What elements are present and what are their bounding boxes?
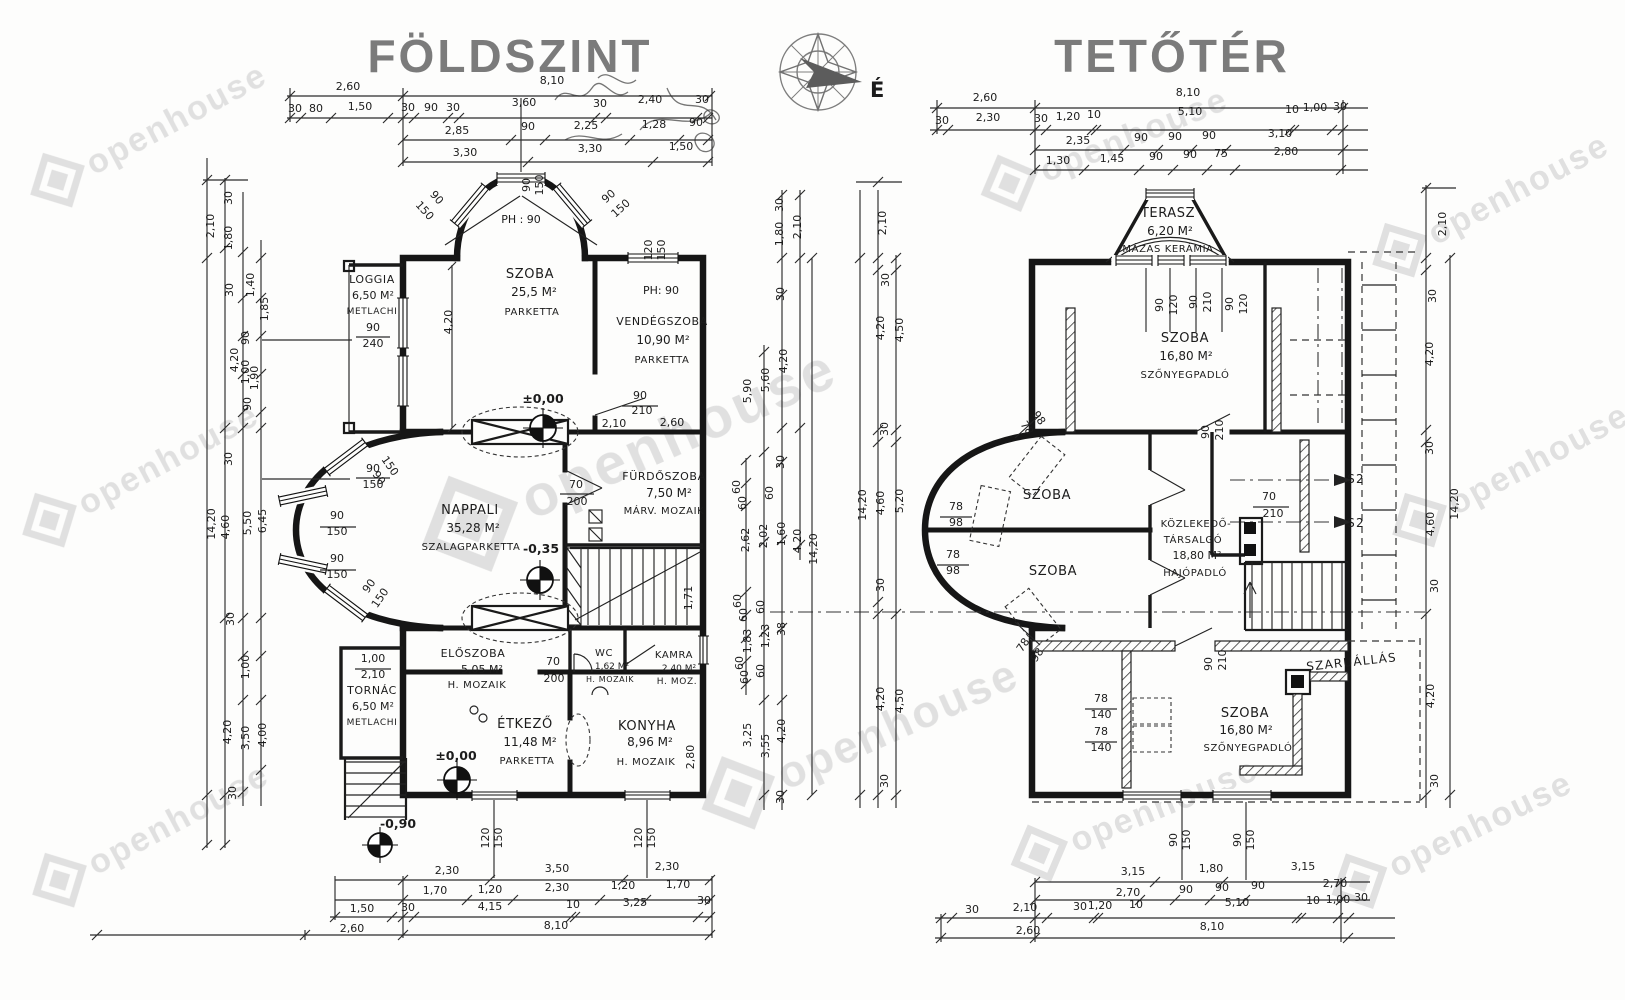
dim-label: 4,20 [874, 316, 887, 341]
dim-label: 150 [645, 828, 658, 849]
dim-label: 4,60 [1424, 512, 1437, 537]
dim-label: 4,20 [442, 310, 455, 335]
dim-label: 3,55 [759, 734, 772, 759]
dim-label: 150 [492, 828, 505, 849]
dim-label: 90 [520, 178, 533, 192]
dim-label: 90 [1153, 298, 1166, 312]
dim-label: 78 [949, 500, 963, 513]
area-label: 18,80 M² [1173, 549, 1222, 562]
dim-label: 30 [1426, 289, 1439, 303]
floor-label: PARKETTA [500, 756, 555, 767]
dim-label: 30 [878, 774, 891, 788]
dim-label: 90 [1168, 130, 1182, 143]
dim-label: 1,45 [1100, 152, 1125, 165]
room-label: TÁRSALGÓ [1163, 533, 1223, 546]
watermark [1384, 388, 1625, 556]
dim-label: 90 [521, 120, 535, 133]
dim-label: 4,20 [1423, 342, 1436, 367]
dim-label: 3,15 [1291, 860, 1316, 873]
dim-label: 10 [566, 898, 580, 911]
room-label: FÜRDŐSZOBA [622, 469, 705, 483]
floor-label: MÁZAS KERÁMIA [1122, 242, 1213, 255]
window [1123, 789, 1181, 802]
dim-label: 150 [327, 568, 348, 581]
dim-label: 1,20 [1056, 110, 1081, 123]
dim-label: 1,80 [1199, 862, 1224, 875]
dim-label: 90 [241, 397, 254, 411]
watermark [1364, 118, 1617, 286]
dim-label: 4,20 [221, 720, 234, 745]
dim-label: 78 [1094, 725, 1108, 738]
dim-label: 90 [599, 187, 618, 206]
dim-label: 30 [773, 198, 786, 212]
dim-label: 2,10 [876, 211, 889, 236]
dim-label: 5,10 [1225, 896, 1250, 909]
room-label: SZOBA [506, 267, 554, 282]
dim-label: 10 [1129, 898, 1143, 911]
dim-label: 38 [775, 622, 788, 636]
dim-label: 90 [239, 331, 252, 345]
room-label: NAPPALI [441, 503, 499, 518]
area-label: 6,50 M² [352, 289, 394, 302]
dim-label: 70 [1262, 490, 1276, 503]
dim-label: 150 [327, 525, 348, 538]
dim-label: 120 [1167, 295, 1180, 316]
north-label: É [870, 77, 884, 102]
dim-label: 8,10 [540, 74, 565, 87]
area-label: 6,50 M² [352, 700, 394, 713]
room-label: ÉTKEZŐ [497, 716, 553, 732]
room-label: SZOBA [1029, 564, 1077, 579]
dim-label: 4,20 [791, 529, 804, 554]
dim-label: 30 [1423, 441, 1436, 455]
floor-label: H. MOZAIK [586, 675, 634, 684]
dim-label: 240 [363, 337, 384, 350]
dim-label: 1,00 [239, 655, 252, 680]
dim-label: 2,80 [1274, 145, 1299, 158]
dim-label: 3,60 [512, 96, 537, 109]
dim-label: 8,10 [1200, 920, 1225, 933]
room-label: VENDÉGSZOBA [616, 315, 708, 328]
dim-label: 30 [697, 894, 711, 907]
level-mark-label: -0,35 [523, 541, 559, 556]
dim-label: 120 [1237, 294, 1250, 315]
dim-label: 30 [226, 786, 239, 800]
dim-label: 1,00 [1303, 101, 1328, 114]
dim-label: 90 [1149, 150, 1163, 163]
room-label: LOGGIA [349, 273, 395, 286]
dim-label: 2,60 [340, 922, 365, 935]
level-mark-label: -0,90 [380, 816, 416, 831]
dim-label: 2,40 [638, 93, 663, 106]
dim-label: 30 [401, 101, 415, 114]
note-label: SZARUÁLLÁS [1306, 649, 1398, 673]
window [697, 636, 710, 664]
dim-label: 2,10 [204, 214, 217, 239]
dim-label: 90 [1199, 425, 1212, 439]
dim-label: 70 [569, 478, 583, 491]
dim-label: 1,50 [669, 140, 694, 153]
watermark [22, 48, 275, 216]
dim-label: 98 [949, 516, 963, 529]
watermark [24, 748, 277, 916]
room-label: SZOBA [1023, 488, 1071, 503]
dim-label: 1,30 [1046, 154, 1071, 167]
dim-label: 1,20 [478, 883, 503, 896]
dim-label: 30 [401, 901, 415, 914]
room-label: TERASZ [1140, 206, 1195, 221]
level-mark [520, 560, 560, 600]
dim-label: 200 [544, 672, 565, 685]
dim-label: 140 [1091, 741, 1112, 754]
dim-label: 30 [222, 191, 235, 205]
room-label: ELŐSZOBA [441, 646, 506, 660]
room-label: SZOBA [1221, 706, 1269, 721]
dim-label: 30 [695, 93, 709, 106]
dim-label: 2,30 [655, 860, 680, 873]
dim-label: 90 [1202, 657, 1215, 671]
area-label: 35,28 M² [446, 521, 500, 535]
dim-label: 14,20 [856, 489, 869, 521]
dim-label: 2,35 [1066, 134, 1091, 147]
watermark-layer [14, 48, 1625, 916]
dim-label: 210 [632, 404, 653, 417]
dim-label: 30 [446, 101, 460, 114]
dim-label: 5,50 [241, 511, 254, 536]
dim-label: 4,20 [874, 687, 887, 712]
dim-label: 60 [763, 486, 776, 500]
dim-label: 14,20 [1448, 488, 1461, 520]
dim-label: 4,60 [874, 491, 887, 516]
dim-label: 3,30 [453, 146, 478, 159]
window [551, 182, 593, 228]
dim-label: 4,15 [478, 900, 503, 913]
dim-label: 30 [1354, 891, 1368, 904]
floor-label: PARKETTA [505, 307, 560, 318]
floor-plan-sheet: openhouse FÖLDSZINT TETŐTÉR É [0, 0, 1625, 1000]
dim-label: 60 [733, 656, 746, 670]
dim-label: 1,20 [611, 879, 636, 892]
dim-label: 4,20 [1424, 684, 1437, 709]
level-mark-label: ±0,00 [435, 748, 477, 763]
room-label: KONYHA [618, 719, 676, 734]
dim-label: 1,00 [1326, 893, 1351, 906]
dim-label: 120 [642, 240, 655, 261]
dim-label: 3,50 [545, 862, 570, 875]
dim-label: 90 [1179, 883, 1193, 896]
dim-label: 90 [1251, 879, 1265, 892]
dim-label: 2,30 [545, 881, 570, 894]
dim-label: 1,83 [741, 629, 754, 654]
dim-label: 90 [1183, 148, 1197, 161]
dim-label: 2,60 [973, 91, 998, 104]
dim-label: 90 [1167, 833, 1180, 847]
dim-label: 140 [1091, 708, 1112, 721]
dim-label: 30 [874, 578, 887, 592]
dim-label: 1,60 [775, 522, 788, 547]
dim-label: 4,50 [893, 689, 906, 714]
dim-label: 2,10 [1436, 212, 1449, 237]
dim-label: 2,62 [739, 528, 752, 553]
dim-label: 30 [1428, 579, 1441, 593]
dim-label: 60 [754, 600, 767, 614]
floor-label: SZŐNYEGPADLÓ [1141, 367, 1230, 381]
room-label: TORNÁC [346, 684, 397, 697]
plan-labels: 2,608,1030801,503090303,60302,40302,8590… [204, 74, 1461, 937]
dim-label: 2,30 [435, 864, 460, 877]
dim-label: 150 [1244, 830, 1257, 851]
dim-label: 4,00 [256, 723, 269, 748]
dim-label: 150 [655, 240, 668, 261]
attic-title: TETŐTÉR [1054, 30, 1290, 82]
dim-label: 4,20 [775, 719, 788, 744]
dim-label: 1,00 [361, 652, 386, 665]
dim-label: 3,25 [741, 723, 754, 748]
area-label: 16,80 M² [1219, 723, 1273, 737]
dim-label: 60 [754, 664, 767, 678]
dim-label: 210 [1216, 650, 1229, 671]
dim-label: 210 [1201, 292, 1214, 313]
level-mark-label: ±0,00 [522, 391, 564, 406]
dim-label: 1,70 [423, 884, 448, 897]
dim-label: 1,70 [666, 878, 691, 891]
dim-label: 1,23 [759, 624, 772, 649]
dim-label: 30 [774, 790, 787, 804]
dim-label: 60 [738, 670, 751, 684]
dim-label: 3,50 [239, 726, 252, 751]
dim-label: 30 [288, 102, 302, 115]
room-label: KAMRA [655, 650, 693, 661]
dim-label: 1,50 [348, 100, 373, 113]
dim-label: 90 [1187, 295, 1200, 309]
dim-label: 6,45 [256, 509, 269, 534]
dim-label: 5,10 [1178, 105, 1203, 118]
dim-label: 3,30 [578, 142, 603, 155]
dim-label: 2,10 [602, 417, 627, 430]
dim-label: 90 [1134, 131, 1148, 144]
dim-label: 120 [632, 828, 645, 849]
dim-label: 200 [567, 495, 588, 508]
dim-label: 2,10 [1013, 901, 1038, 914]
dim-label: 30 [935, 114, 949, 127]
area-label: 1,62 M² [595, 662, 630, 672]
dim-label: 3,10 [1268, 127, 1293, 140]
window [1146, 187, 1194, 200]
dim-label: 1,80 [773, 222, 786, 247]
dim-label: 90 [427, 188, 446, 207]
dim-label: 210 [1263, 507, 1284, 520]
dim-label: 1,28 [642, 118, 667, 131]
window [396, 298, 410, 348]
dim-label: 30 [593, 97, 607, 110]
dim-label: 30 [1034, 112, 1048, 125]
dim-label: 3,15 [1121, 865, 1146, 878]
dim-label: 2,10 [791, 215, 804, 240]
dim-label: 2,60 [660, 416, 685, 429]
dim-label: 2,80 [684, 745, 697, 770]
dim-label: 90 [330, 509, 344, 522]
dim-label: 30 [223, 283, 236, 297]
dim-label: 90 [330, 552, 344, 565]
area-label: 11,48 M² [503, 735, 557, 749]
floor-label: METLACHI [347, 307, 398, 317]
dim-label: 8,10 [544, 919, 569, 932]
level-mark [362, 827, 398, 863]
dim-label: 98 [946, 564, 960, 577]
area-label: 16,80 M² [1159, 349, 1213, 363]
dim-label: 30 [965, 903, 979, 916]
room-label: WC [595, 648, 613, 659]
dim-label: PH: 90 [643, 284, 679, 297]
dim-label: 5,60 [759, 368, 772, 393]
dim-label: 90 [689, 116, 703, 129]
dim-label: 90 [1231, 833, 1244, 847]
note-label: S2 [1347, 516, 1365, 530]
dim-label: 5,90 [741, 379, 754, 404]
dim-label: 5,20 [893, 489, 906, 514]
dim-label: 2,02 [757, 524, 770, 549]
ground-floor-title: FÖLDSZINT [367, 30, 652, 82]
dim-label: 30 [1333, 100, 1347, 113]
dim-label: 8,10 [1176, 86, 1201, 99]
dim-label: 2,70 [1323, 877, 1348, 890]
dim-label: 2,25 [574, 119, 599, 132]
dim-label: 10 [1087, 108, 1101, 121]
dim-label: 1,50 [350, 902, 375, 915]
dim-label: 1,71 [682, 586, 695, 611]
dim-label: 1,40 [244, 273, 257, 298]
area-label: 2,40 M² [662, 664, 697, 674]
room-label: KÖZLEKEDŐ- [1161, 516, 1232, 530]
floor-label: MÁRV. MOZAIK [624, 504, 705, 517]
compass-rose [780, 34, 862, 110]
area-label: 10,90 M² [636, 333, 690, 347]
dim-label: 90 [1223, 297, 1236, 311]
dim-label: 75 [1214, 147, 1228, 160]
dim-label: 70 [546, 655, 560, 668]
dim-label: 10 [1306, 894, 1320, 907]
floor-label: SZŐNYEGPADLÓ [1204, 740, 1293, 754]
floor-label: PARKETTA [635, 355, 690, 366]
dim-label: 2,85 [445, 124, 470, 137]
room-label: SZOBA [1161, 331, 1209, 346]
area-label: 5,05 M² [461, 663, 503, 676]
window [396, 356, 410, 406]
dim-label: 1,85 [258, 297, 271, 322]
floor-label: H. MOZAIK [448, 680, 507, 691]
dim-label: 78 [1094, 692, 1108, 705]
floor-label: METLACHI [347, 718, 398, 728]
dim-label: 30 [1428, 774, 1441, 788]
window [449, 182, 491, 228]
dim-label: 1,90 [248, 366, 261, 391]
dim-label: 60 [731, 594, 744, 608]
dim-label: 14,20 [205, 508, 218, 540]
dim-label: 30 [878, 422, 891, 436]
dim-label: 30 [879, 273, 892, 287]
floor-label: H. MOZAIK [617, 757, 676, 768]
dim-label: 4,50 [893, 318, 906, 343]
dim-label: 90 [1202, 129, 1216, 142]
dim-label: 78 [946, 548, 960, 561]
dim-label: 150 [533, 175, 546, 196]
floor-label: HAJÓPADLÓ [1163, 566, 1227, 579]
dim-label: 150 [1180, 830, 1193, 851]
dim-label: 60 [737, 608, 750, 622]
dim-label: 60 [730, 480, 743, 494]
dim-label: 3,25 [623, 896, 648, 909]
dim-label: 1,20 [1088, 899, 1113, 912]
dim-label: 90 [1215, 881, 1229, 894]
dim-label: 60 [736, 496, 749, 510]
dim-label: 80 [309, 102, 323, 115]
dim-label: 90 [424, 101, 438, 114]
dim-label: 30 [224, 612, 237, 626]
area-label: 8,96 M² [627, 735, 673, 749]
area-label: 25,5 M² [511, 285, 557, 299]
dim-label: 90 [633, 389, 647, 402]
dim-label: 4,20 [777, 349, 790, 374]
dim-label: 14,20 [807, 533, 820, 565]
dim-label: 2,10 [361, 668, 386, 681]
dim-label: 30 [1073, 900, 1087, 913]
dim-label: 120 [479, 828, 492, 849]
blueprint-drawing: openhouse FÖLDSZINT TETŐTÉR É [0, 0, 1625, 1000]
dim-label: 1,80 [222, 226, 235, 251]
dim-label: 4,60 [219, 515, 232, 540]
dim-label: 90 [366, 321, 380, 334]
window [323, 437, 370, 477]
note-label: S2 [1347, 472, 1365, 486]
floor-label: H. MOZ. [657, 677, 697, 687]
floor-label: SZALAGPARKETTA [422, 542, 521, 553]
dim-label: 210 [1213, 420, 1226, 441]
area-label: 6,20 M² [1147, 224, 1193, 238]
attic-floor-plan [925, 187, 1420, 802]
dim-label: 30 [774, 455, 787, 469]
area-label: 7,50 M² [646, 486, 692, 500]
dim-label: 2,60 [336, 80, 361, 93]
dim-label: PH : 90 [501, 213, 541, 226]
dim-label: 2,60 [1016, 924, 1041, 937]
dim-label: 30 [774, 287, 787, 301]
dim-label: 30 [222, 452, 235, 466]
dim-label: 2,30 [976, 111, 1001, 124]
dim-label: 10 [1285, 103, 1299, 116]
window [1213, 789, 1271, 802]
